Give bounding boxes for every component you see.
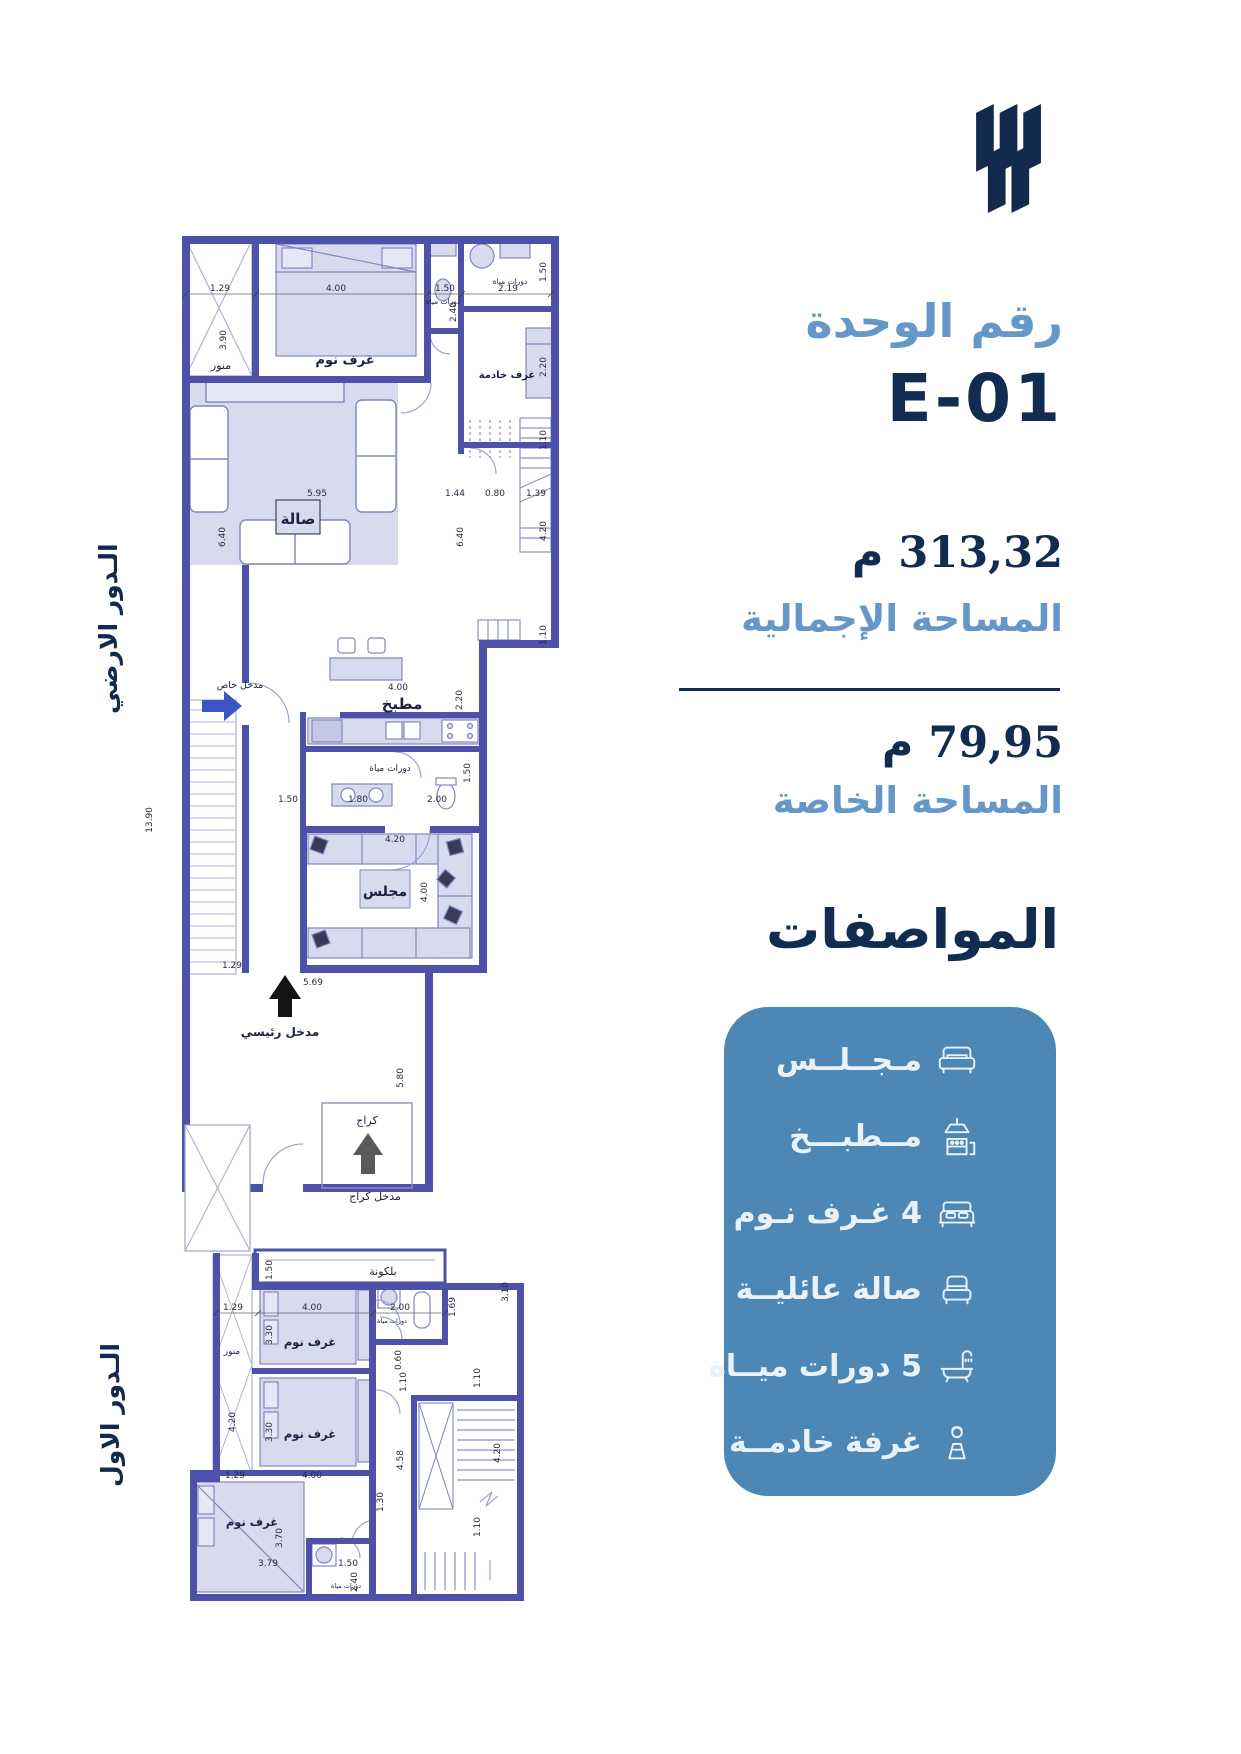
spec-item-kitchen: مــطبـــخ (724, 1114, 1056, 1160)
room-label: دورات مياة (369, 764, 411, 774)
dim-label: 1.69 (448, 1297, 458, 1317)
room-label: غرف نوم (226, 1515, 278, 1530)
room-label: منور (210, 359, 231, 372)
spec-item-family-hall: صالة عائليــة (724, 1267, 1056, 1313)
specs-box: مـجــلــس مــطبـــخ 4 (724, 1007, 1056, 1496)
room-label: مدخل خاص (217, 680, 263, 691)
balcony (255, 1250, 445, 1283)
dim-label: 5.80 (396, 1068, 406, 1088)
dim-label: 1.10 (473, 1368, 483, 1388)
room-label: بلكونة (369, 1265, 396, 1278)
dim-label: 4.20 (493, 1443, 503, 1463)
dim-label: 1.44 (445, 489, 465, 499)
dim-label: 1.50 (463, 763, 473, 783)
brand-logo-icon (968, 104, 1052, 216)
unit-number-label: رقم الوحدة (806, 294, 1063, 348)
room-label: مدخل رئيسي (241, 1025, 320, 1039)
dim-label: 3.30 (265, 1422, 275, 1442)
brand-logo (968, 104, 1052, 220)
dim-label: 1.50 (539, 262, 549, 282)
dim-label: 1.50 (265, 1260, 275, 1280)
private-area-value: 79,95 م (882, 718, 1063, 768)
dim-label: 1.50 (338, 1559, 358, 1569)
room-label: صالة (281, 510, 316, 528)
dim-label: 2.20 (455, 690, 465, 710)
dim-label: 6.40 (218, 527, 228, 547)
spec-item-label: 4 غـرف نـوم (734, 1196, 922, 1231)
dim-label: 1.29 (223, 1303, 243, 1313)
dim-label: 3.70 (275, 1528, 285, 1548)
sofa-icon (934, 1037, 980, 1083)
spec-item-label: 5 دورات ميــاة (708, 1349, 922, 1384)
stairs (419, 1403, 515, 1590)
dim-label: 1.50 (278, 795, 298, 805)
dim-label: 4.00 (420, 882, 430, 902)
private-area-label: المساحة الخاصة (773, 779, 1063, 822)
specs-title: المواصفات (766, 898, 1059, 961)
room-label: منور (223, 1347, 241, 1357)
dim-label: 5.95 (307, 489, 327, 499)
room-label: غرف نوم (284, 1335, 336, 1350)
dim-label: 4.20 (385, 835, 405, 845)
dim-label: 1.10 (539, 625, 549, 645)
dim-label: 3.30 (265, 1325, 275, 1345)
spec-item-bathrooms: 5 دورات ميــاة (724, 1343, 1056, 1389)
ground-floor-name: الـدور الارضي (94, 536, 123, 722)
dim-label: 5.69 (303, 978, 323, 988)
dim-label: 4.00 (302, 1471, 322, 1481)
bed-furniture (276, 244, 416, 356)
spec-item-majlis: مـجــلــس (724, 1037, 1056, 1083)
dim-label: 3.79 (258, 1559, 278, 1569)
dim-label: 1.29 (225, 1471, 245, 1481)
shaft-hatch (185, 1125, 250, 1251)
total-area-value: 313,32 م (852, 528, 1063, 578)
spec-item-maid-room: غرفة خادمــة (724, 1420, 1056, 1466)
spec-item-label: مــطبـــخ (789, 1119, 922, 1154)
dim-label: 1.10 (399, 1372, 409, 1392)
bed-icon (934, 1190, 980, 1236)
dim-label: 1.30 (376, 1492, 386, 1512)
lightwell-hatch (186, 240, 252, 376)
dim-label: 4.00 (326, 284, 346, 294)
side-strip-hatch (186, 700, 236, 974)
dim-label: 1.50 (435, 284, 455, 294)
spec-item-label: مـجــلــس (776, 1043, 922, 1078)
dim-label: 1.10 (539, 430, 549, 450)
room-label: مطبخ (382, 695, 423, 713)
dim-label: 4.58 (396, 1450, 406, 1470)
dim-label: 1.10 (473, 1517, 483, 1537)
room-label: دورات مياة (493, 277, 528, 286)
dim-label: 2.20 (539, 357, 549, 377)
dim-label: 4.00 (302, 1303, 322, 1313)
dim-label: 4.20 (228, 1412, 238, 1432)
first-floor-name: الـدور الاول (96, 1340, 125, 1490)
dim-label: 3.90 (219, 330, 229, 350)
room-label: دورات مياة (331, 1582, 361, 1590)
spec-item-label: غرفة خادمــة (729, 1425, 922, 1460)
room-label: غرف خادمة (479, 370, 536, 381)
total-area-label: المساحة الإجمالية (741, 597, 1063, 640)
dim-label: 1.80 (348, 795, 368, 805)
dim-label: 13.90 (145, 807, 155, 833)
main-entrance-arrow (269, 975, 301, 1017)
armchair-icon (934, 1267, 980, 1313)
maid-icon (934, 1420, 980, 1466)
spec-item-label: صالة عائليــة (736, 1272, 922, 1307)
dim-label: 6.40 (456, 527, 466, 547)
dim-label: 1.39 (526, 489, 546, 499)
section-divider (679, 688, 1060, 691)
dim-label: 0.80 (485, 489, 505, 499)
kitchen-icon (934, 1114, 980, 1160)
dim-label: 1.29 (210, 284, 230, 294)
unit-number-value: E-01 (887, 360, 1063, 437)
bath-icon (934, 1343, 980, 1389)
dim-label: 2.00 (390, 1303, 410, 1313)
dim-label: 3.10 (501, 1282, 511, 1302)
first-floor-plan: 1.50 1.29 4.00 2.00 1.69 3.10 3.30 3.30 … (140, 1120, 570, 1680)
room-label: غرف نوم (315, 353, 374, 368)
dim-label: 1.29 (222, 961, 242, 971)
ground-floor-plan: 1.29 4.00 1.50 2.19 1.50 3.90 2.40 2.20 … (140, 228, 570, 1208)
dim-label: 4.00 (388, 683, 408, 693)
room-label: مجلس (363, 884, 407, 900)
dim-label: 2.00 (427, 795, 447, 805)
spec-item-bedrooms: 4 غـرف نـوم (724, 1190, 1056, 1236)
room-label: غرف نوم (284, 1427, 336, 1442)
dim-label: 0.60 (394, 1350, 404, 1370)
dim-label: 4.20 (539, 521, 549, 541)
room-label: دورات مياة (377, 1317, 407, 1325)
room-label: دورات مياة (426, 297, 461, 306)
